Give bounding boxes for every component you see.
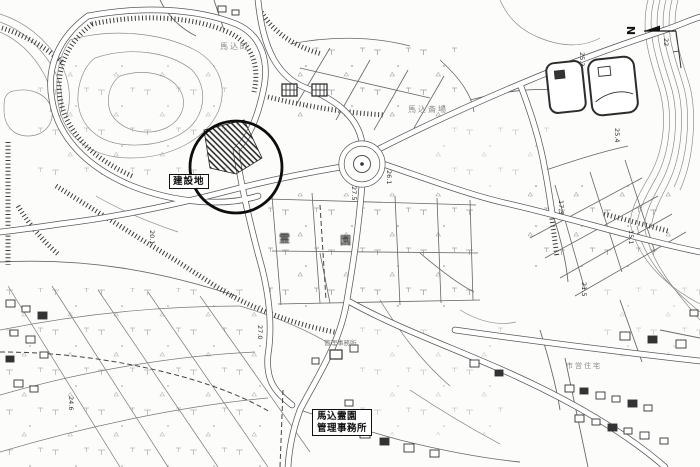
map-canvas: 建設地 馬込霊園 管理事務所 N 26.1 27.5 25.4 17.3 15.… (0, 0, 700, 467)
roundabout (342, 144, 383, 185)
walled-compounds (545, 56, 638, 117)
map-linework (0, 0, 700, 467)
